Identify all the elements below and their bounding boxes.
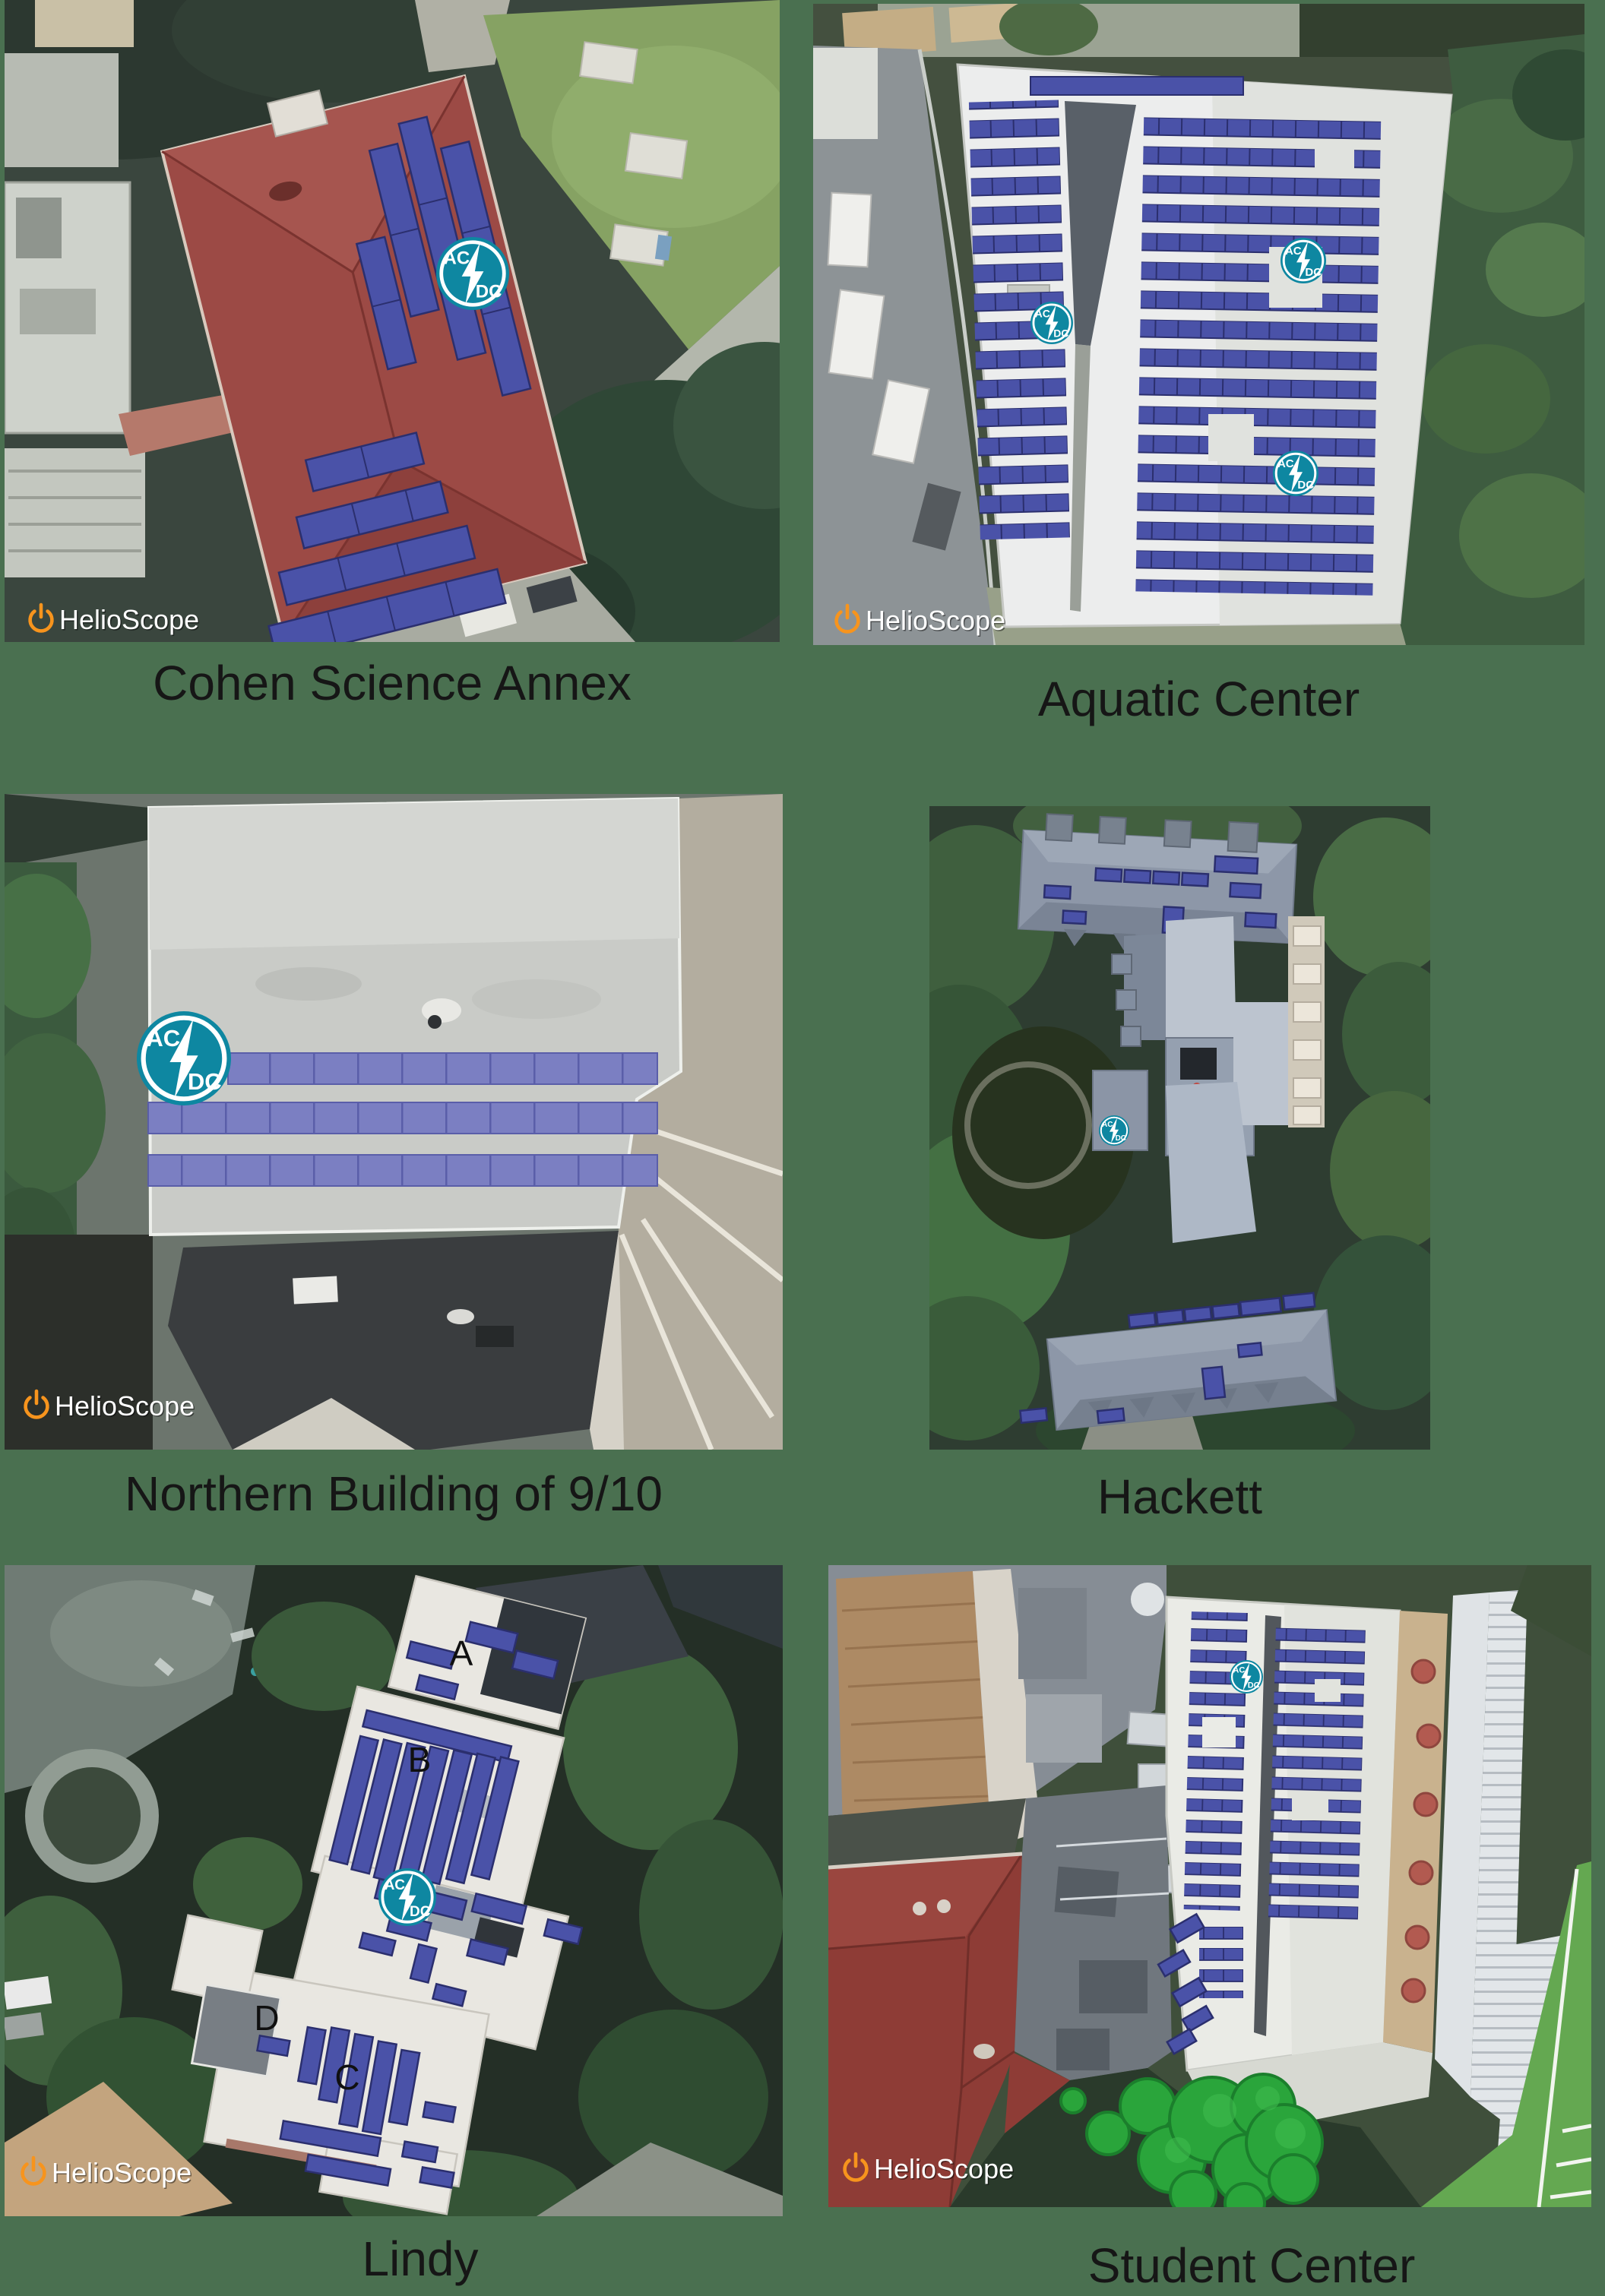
aerial-image-lindy: A B C D AC DC HelioScope HelioScope [5,1565,783,2216]
tile-cohen-science-annex: AC DC HelioScope HelioScope [5,0,780,642]
aerial-image-hackett: AC DC [929,806,1430,1450]
aerial-image-aquatic-center: AC DC AC DC AC DC HelioScope HelioScope [813,4,1584,645]
tile-northern-building: AC DC HelioScope HelioScope [5,794,783,1450]
svg-text:DC: DC [476,282,502,302]
figure-sheet: AC DC HelioScope HelioScope Cohen Scienc… [0,0,1605,2296]
svg-text:HelioScope: HelioScope [874,2153,1014,2184]
svg-text:HelioScope: HelioScope [59,604,199,635]
roof-section-label: C [334,2057,359,2097]
tile-hackett: AC DC [929,806,1430,1450]
svg-text:DC: DC [188,1068,222,1095]
svg-text:HelioScope: HelioScope [52,2157,192,2188]
caption-hackett: Hackett [929,1472,1430,1523]
roof-section-label: D [254,1998,279,2038]
tile-aquatic-center: AC DC AC DC AC DC HelioScope HelioScope [813,4,1584,645]
svg-text:DC: DC [410,1904,431,1920]
svg-text:DC: DC [1053,327,1068,339]
svg-text:AC: AC [1277,457,1294,470]
caption-lindy: Lindy [31,2234,809,2285]
acdc-inverter-badge: AC DC [378,1868,436,1926]
acdc-inverter-badge: AC DC [1230,1660,1263,1694]
svg-text:AC: AC [385,1877,406,1893]
svg-text:AC: AC [1285,245,1302,258]
aerial-image-student-center: AC DC HelioScope HelioScope [828,1565,1591,2207]
acdc-inverter-badge: AC DC [137,1011,231,1105]
caption-aquatic-center: Aquatic Center [813,674,1584,725]
roof-section-label: A [450,1633,473,1673]
tile-lindy: A B C D AC DC HelioScope HelioScope [5,1565,783,2216]
svg-text:AC: AC [444,248,470,269]
caption-northern-building: Northern Building of 9/10 [5,1469,783,1520]
svg-text:DC: DC [1248,1681,1260,1690]
acdc-inverter-badge: AC DC [436,237,509,310]
acdc-inverter-badge: AC DC [1273,451,1319,496]
svg-text:AC: AC [1233,1665,1245,1675]
svg-text:DC: DC [1116,1134,1126,1143]
svg-text:HelioScope: HelioScope [55,1390,195,1422]
svg-text:AC: AC [1102,1121,1113,1129]
aerial-image-northern-building: AC DC HelioScope HelioScope [5,794,783,1450]
svg-text:DC: DC [1305,266,1322,279]
acdc-inverter-badge: AC DC [1030,302,1073,344]
svg-text:AC: AC [1035,308,1050,320]
caption-cohen-science-annex: Cohen Science Annex [5,658,780,709]
acdc-inverter-badge: AC DC [1281,238,1326,283]
svg-text:AC: AC [146,1025,180,1052]
roof-section-label: B [408,1740,432,1779]
tile-student-center: AC DC HelioScope HelioScope [828,1565,1591,2207]
acdc-inverter-badge: AC DC [1099,1115,1129,1146]
aerial-image-cohen-science-annex: AC DC HelioScope HelioScope [5,0,780,642]
svg-text:DC: DC [1297,479,1314,492]
svg-text:HelioScope: HelioScope [866,605,1005,636]
caption-student-center: Student Center [870,2241,1605,2291]
